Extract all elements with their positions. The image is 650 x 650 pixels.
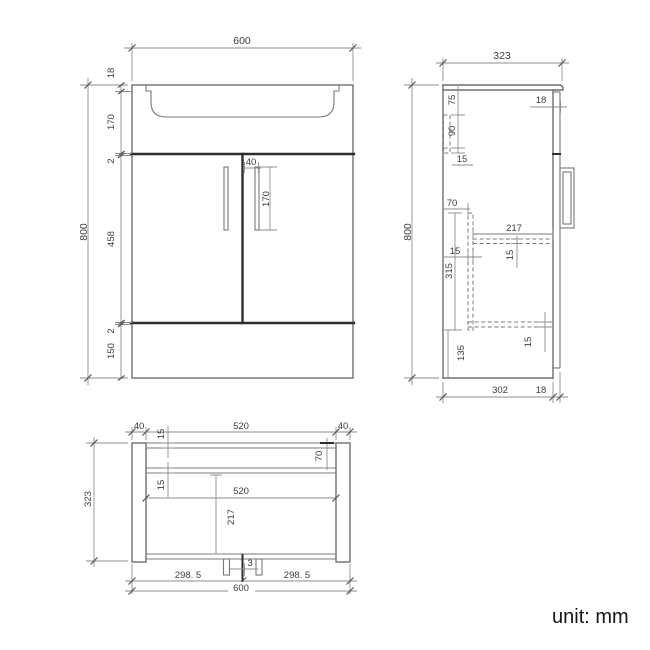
- dim-front-plinth-height: 150: [106, 343, 117, 359]
- dim-side-shelf-depth: 217: [506, 223, 522, 234]
- basin-profile: [146, 85, 339, 117]
- dim-side-bracket-height: 90: [447, 126, 458, 137]
- dim-plan-panel-back-offset: 70: [314, 451, 325, 462]
- dim-front-apron-height: 170: [106, 114, 117, 130]
- dim-plan-back-rail-thickness: 15: [156, 429, 167, 440]
- worktop-profile: [443, 85, 563, 90]
- dim-side-panel-back-offset: 70: [447, 198, 458, 209]
- dim-side-bracket-thickness: 15: [457, 154, 468, 165]
- dim-plan-divider-thickness: 15: [156, 480, 167, 491]
- dim-side-door-thickness-bottom: 18: [536, 385, 547, 396]
- dim-plan-overall-depth: 323: [83, 491, 94, 507]
- front-dim-height: 800: [78, 78, 128, 385]
- dim-side-overall-height: 800: [402, 223, 414, 241]
- dim-plan-left-panel-width: 40: [134, 421, 145, 432]
- dim-side-bottom-shelf-thickness: 15: [523, 337, 534, 348]
- front-dim-handle: 40 170: [243, 157, 277, 230]
- unit-note: unit: mm: [552, 606, 629, 628]
- dim-plan-overall-width: 600: [233, 583, 249, 594]
- dim-side-carcass-depth: 302: [492, 385, 508, 396]
- dim-plan-door-gap: 3: [247, 558, 252, 569]
- side-dim-bottom: 302 18: [436, 372, 568, 403]
- side-view: 323 800 18 75 90 15 70: [402, 50, 574, 403]
- dim-side-shelf-thickness: 15: [505, 250, 516, 261]
- front-view: 600 800 18 170 2 458 2 150: [78, 35, 361, 385]
- dim-plan-right-panel-width: 40: [338, 421, 349, 432]
- side-door-handle: [560, 168, 574, 228]
- front-dim-column: 18 170 2 458 2 150: [106, 68, 132, 381]
- plan-view: 40 520 40 323 15 15 70: [83, 421, 357, 595]
- dim-front-overall-width: 600: [233, 35, 251, 47]
- front-dim-width: 600: [124, 35, 361, 81]
- dim-side-door-thickness-top: 18: [536, 95, 547, 106]
- dim-front-handle-offset: 40: [246, 157, 257, 168]
- plan-right-panel: [336, 443, 350, 562]
- dim-plan-right-door-width: 298. 5: [284, 570, 310, 581]
- dim-side-overall-depth: 323: [493, 50, 511, 62]
- dim-side-panel-height: 315: [444, 263, 455, 279]
- front-cabinet-outline: [131, 85, 354, 378]
- dim-front-overall-height: 800: [78, 223, 90, 241]
- dim-front-worktop-thickness: 18: [106, 68, 117, 79]
- side-dim-bracket: 75 90 15: [447, 85, 473, 165]
- right-door-handle: [255, 167, 259, 230]
- dim-front-door-height: 458: [106, 231, 117, 247]
- plan-dim-interior: 70 520 217: [143, 438, 340, 554]
- dim-front-bottom-gap: 2: [106, 328, 117, 333]
- plan-dim-bottom: 3 298. 5 298. 5 600: [125, 558, 357, 595]
- dim-side-panel-thickness: 15: [450, 246, 461, 257]
- side-dim-height: 800: [402, 78, 439, 385]
- internal-panel: [468, 213, 473, 330]
- dim-front-top-gap: 2: [106, 158, 117, 163]
- plan-left-handle: [224, 559, 230, 575]
- plan-cabinet-outline: [132, 443, 350, 583]
- dim-side-plinth-inner-height: 135: [456, 345, 467, 361]
- dim-plan-left-door-width: 298. 5: [175, 570, 201, 581]
- plan-left-panel: [132, 443, 146, 562]
- plan-dim-left: 323 15 15: [83, 426, 174, 567]
- plan-right-handle: [256, 559, 262, 575]
- side-dim-door-top: 18: [530, 95, 567, 113]
- technical-drawing-page: 600 800 18 170 2 458 2 150: [0, 0, 650, 650]
- dim-plan-interior-width: 520: [233, 486, 249, 497]
- side-dim-interior: 70 315 15 217 15 15 135: [442, 198, 553, 378]
- dim-plan-interior-depth: 217: [226, 509, 237, 525]
- dim-side-bracket-top-offset: 75: [447, 95, 458, 106]
- side-dim-depth: 323: [436, 50, 569, 81]
- left-door-handle: [224, 167, 228, 230]
- vanity-unit-drawing: 600 800 18 170 2 458 2 150: [0, 0, 650, 650]
- dim-front-handle-length: 170: [261, 191, 272, 207]
- dim-plan-back-rail-width: 520: [233, 421, 249, 432]
